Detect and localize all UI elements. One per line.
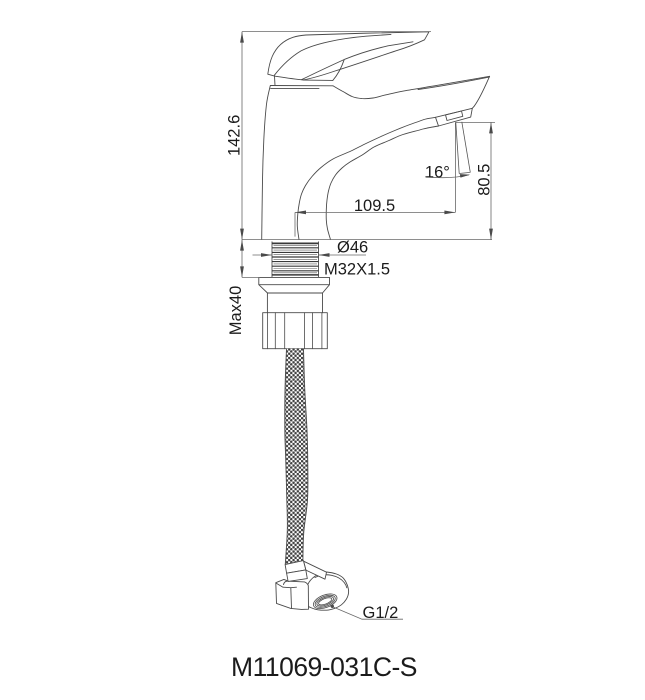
svg-text:16°: 16° <box>425 164 450 182</box>
svg-text:M32X1.5: M32X1.5 <box>324 261 390 279</box>
svg-text:109.5: 109.5 <box>354 197 395 215</box>
svg-text:Ø46: Ø46 <box>337 239 368 257</box>
svg-text:142.6: 142.6 <box>226 115 244 156</box>
svg-text:80.5: 80.5 <box>475 164 493 196</box>
svg-text:Max40: Max40 <box>227 286 245 336</box>
svg-text:G1/2: G1/2 <box>363 604 399 622</box>
svg-text:M11069-031C-S: M11069-031C-S <box>231 652 417 682</box>
